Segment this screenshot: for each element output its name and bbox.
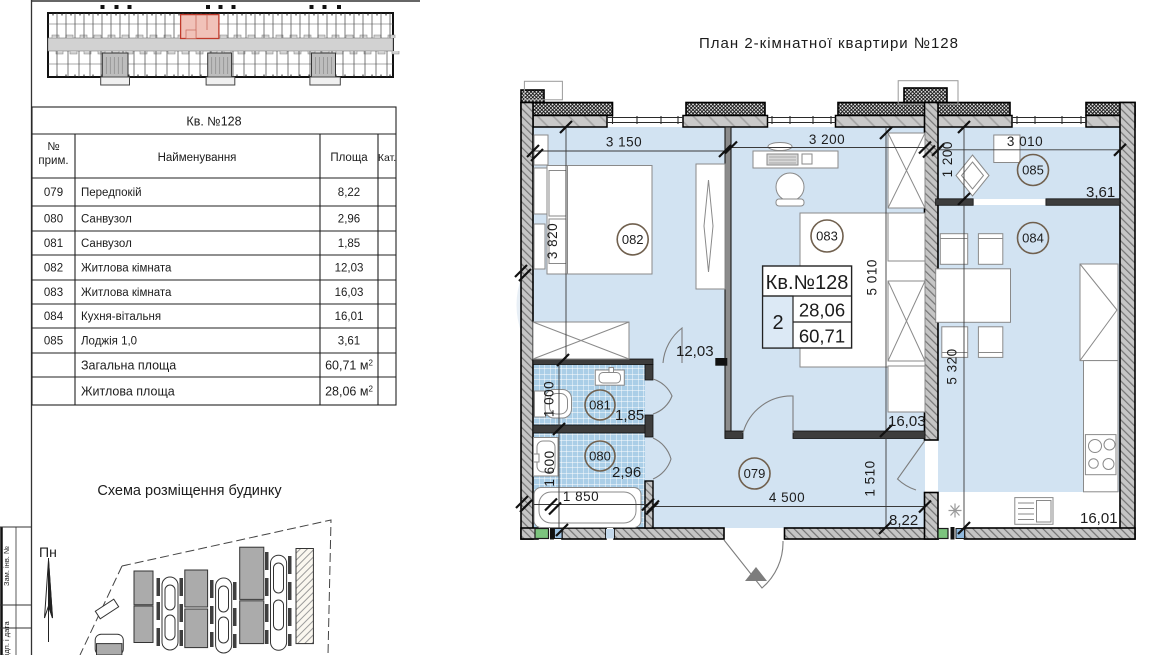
svg-text:Передпокій: Передпокій bbox=[81, 187, 142, 199]
svg-text:5 010: 5 010 bbox=[864, 259, 879, 295]
svg-text:12,03: 12,03 bbox=[335, 263, 364, 275]
svg-text:16,01: 16,01 bbox=[1080, 510, 1118, 527]
svg-text:Житлова кімната: Житлова кімната bbox=[81, 287, 172, 299]
svg-text:Площа: Площа bbox=[330, 152, 368, 164]
svg-text:3 820: 3 820 bbox=[545, 223, 560, 259]
svg-text:Кухня-вітальня: Кухня-вітальня bbox=[81, 311, 161, 323]
svg-text:1 510: 1 510 bbox=[863, 460, 878, 496]
svg-text:2: 2 bbox=[772, 312, 783, 334]
svg-text:28,06: 28,06 bbox=[799, 300, 845, 321]
svg-text:Санвузол: Санвузол bbox=[81, 238, 132, 250]
svg-text:080: 080 bbox=[589, 449, 611, 464]
svg-text:081: 081 bbox=[589, 398, 611, 413]
svg-text:Кв. №128: Кв. №128 bbox=[186, 115, 241, 129]
svg-text:Житлова площа: Житлова площа bbox=[81, 385, 175, 399]
svg-text:2,96: 2,96 bbox=[612, 464, 641, 481]
svg-text:Загальна площа: Загальна площа bbox=[81, 359, 176, 373]
svg-text:Житлова кімната: Житлова кімната bbox=[81, 263, 172, 275]
svg-text:Схема розміщення будинку: Схема розміщення будинку bbox=[97, 483, 282, 499]
svg-text:2,96: 2,96 bbox=[338, 214, 360, 226]
svg-text:№: № bbox=[47, 141, 59, 153]
svg-text:12,03: 12,03 bbox=[676, 343, 714, 360]
svg-text:Кв.№128: Кв.№128 bbox=[766, 272, 849, 294]
svg-text:1,85: 1,85 bbox=[615, 407, 644, 424]
svg-text:План 2-кімнатної квартири №128: План 2-кімнатної квартири №128 bbox=[699, 35, 959, 52]
svg-text:прим.: прим. bbox=[38, 155, 68, 167]
svg-text:080: 080 bbox=[44, 214, 63, 226]
svg-text:1 600: 1 600 bbox=[542, 450, 557, 486]
svg-text:1,85: 1,85 bbox=[338, 238, 360, 250]
svg-text:Кат.: Кат. bbox=[378, 152, 396, 164]
svg-text:1 000: 1 000 bbox=[542, 381, 557, 417]
svg-text:4 500: 4 500 bbox=[769, 490, 805, 505]
svg-text:3 010: 3 010 bbox=[1007, 134, 1043, 149]
svg-text:Лоджія 1,0: Лоджія 1,0 bbox=[81, 336, 137, 348]
svg-text:Найменування: Найменування bbox=[158, 152, 237, 164]
svg-text:085: 085 bbox=[1022, 163, 1044, 178]
svg-text:079: 079 bbox=[44, 187, 63, 199]
svg-text:5 320: 5 320 bbox=[944, 348, 959, 384]
svg-text:082: 082 bbox=[622, 232, 644, 247]
svg-text:60,71: 60,71 bbox=[799, 326, 845, 347]
svg-text:Санвузол: Санвузол bbox=[81, 214, 132, 226]
svg-text:Зам. інв. №: Зам. інв. № bbox=[2, 546, 11, 586]
svg-text:16,03: 16,03 bbox=[335, 287, 364, 299]
svg-text:084: 084 bbox=[44, 311, 64, 323]
svg-text:083: 083 bbox=[44, 287, 63, 299]
svg-text:081: 081 bbox=[44, 238, 63, 250]
svg-text:3,61: 3,61 bbox=[338, 336, 360, 348]
svg-text:8,22: 8,22 bbox=[338, 187, 360, 199]
svg-text:8,22: 8,22 bbox=[889, 512, 918, 529]
svg-text:16,03: 16,03 bbox=[888, 413, 926, 430]
svg-text:Підп. і дата: Підп. і дата bbox=[2, 621, 11, 655]
svg-text:1 850: 1 850 bbox=[563, 489, 599, 504]
svg-text:079: 079 bbox=[744, 466, 766, 481]
svg-text:Пн: Пн bbox=[39, 544, 57, 560]
svg-text:082: 082 bbox=[44, 263, 63, 275]
svg-text:083: 083 bbox=[816, 229, 838, 244]
svg-text:084: 084 bbox=[1022, 231, 1044, 246]
svg-text:16,01: 16,01 bbox=[335, 311, 364, 323]
svg-text:1 200: 1 200 bbox=[940, 141, 955, 177]
svg-text:60,71 м2: 60,71 м2 bbox=[325, 359, 373, 373]
svg-text:3 200: 3 200 bbox=[809, 132, 845, 147]
svg-text:3,61: 3,61 bbox=[1086, 184, 1115, 201]
svg-text:28,06 м2: 28,06 м2 bbox=[325, 385, 373, 399]
svg-text:085: 085 bbox=[44, 336, 63, 348]
svg-text:3 150: 3 150 bbox=[606, 135, 642, 150]
